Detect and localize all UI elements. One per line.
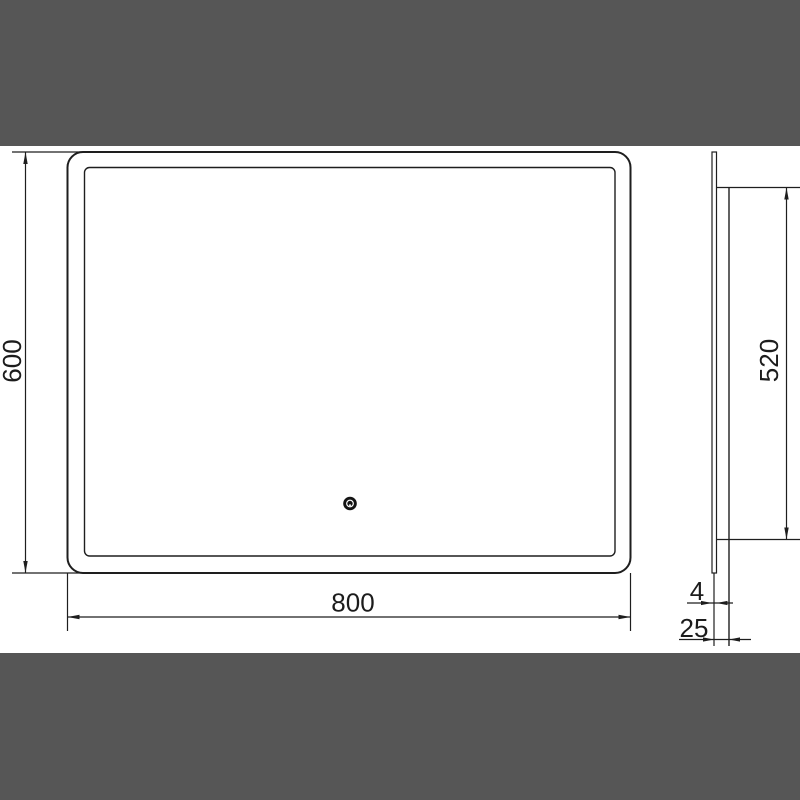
technical-drawing-canvas: 600 800 520 4 25 [0,0,800,800]
touch-sensor-center-dot [349,504,351,506]
touch-sensor-icon [343,497,357,511]
height-dim-label: 600 [0,339,27,382]
touch-sensor-outer-dot [343,497,357,511]
side-height-dim-label: 520 [754,339,784,382]
bottom-band [0,653,800,800]
depth-dim-label: 25 [680,613,709,643]
width-dim-label: 800 [331,588,374,618]
top-band [0,0,800,146]
thickness-dim-label: 4 [690,576,704,606]
